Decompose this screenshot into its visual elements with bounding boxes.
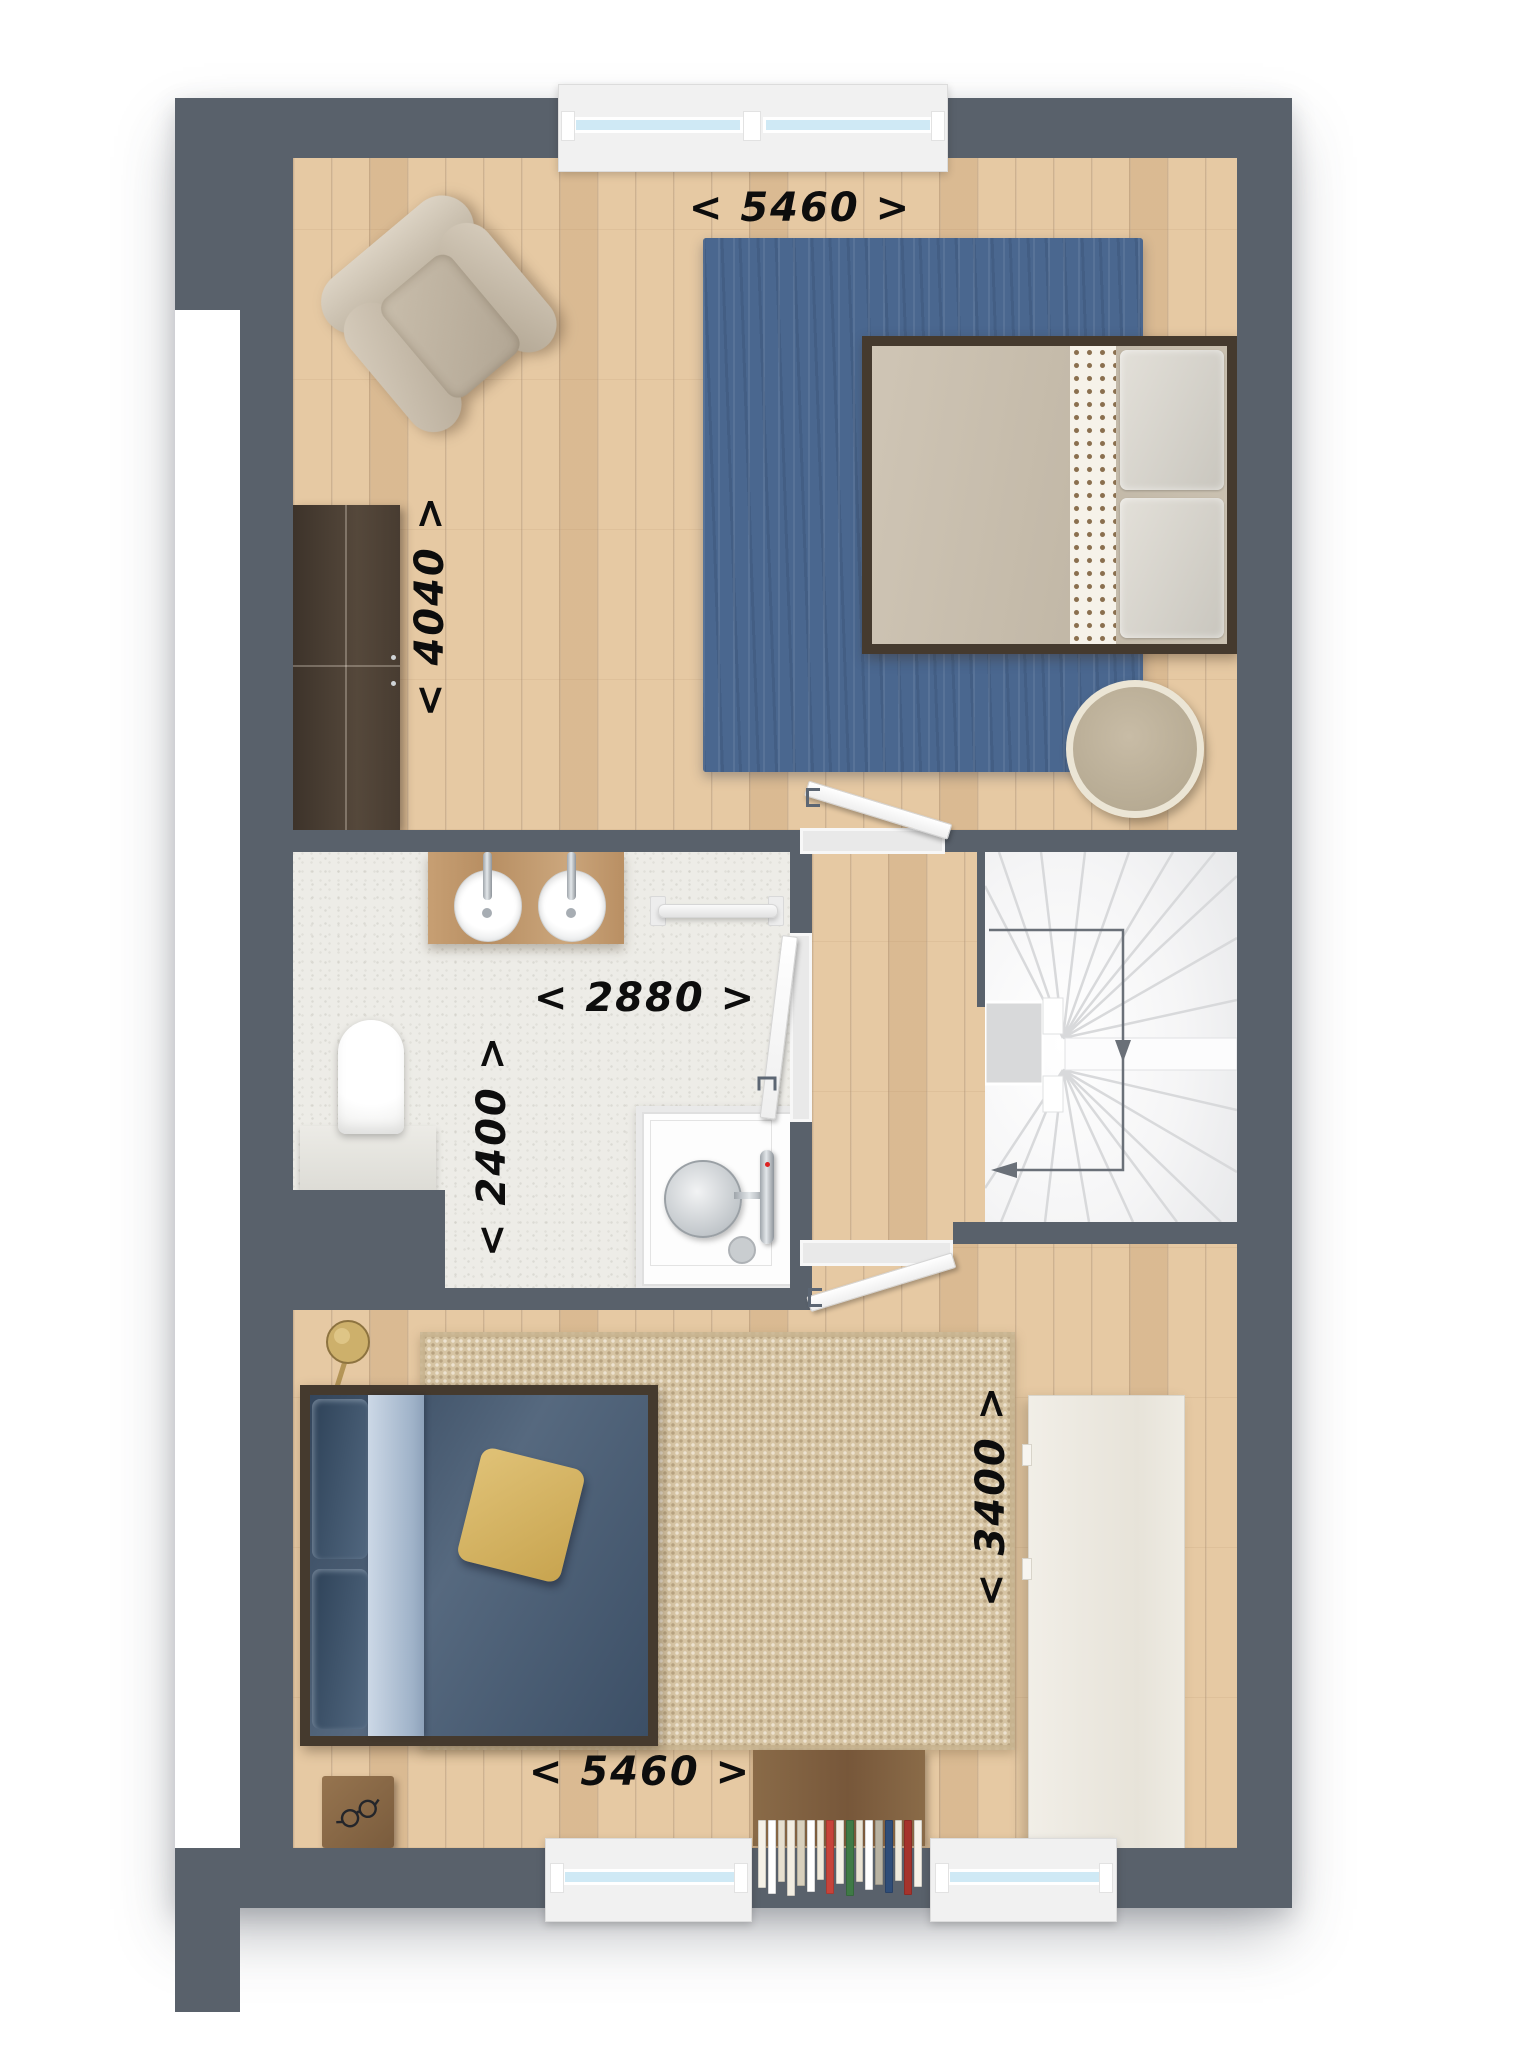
book-spine [875, 1820, 883, 1885]
faucet-right-icon [567, 852, 576, 900]
book-spine [885, 1820, 893, 1893]
window-bottom-right-glass [947, 1869, 1103, 1885]
nightstand [322, 1776, 394, 1848]
faucet-left-icon [483, 852, 492, 900]
wall-bedroom-top-divider-left [293, 830, 800, 852]
wardrobe-handle [391, 655, 396, 660]
book-spine [797, 1820, 805, 1886]
wardrobe-handle-2 [391, 681, 396, 686]
book-spine [856, 1820, 864, 1882]
wall-hall-stairs [977, 852, 985, 1007]
dim-bedroom-bottom-depth: < 3400 > [969, 1397, 1013, 1607]
bookcase-books [758, 1820, 922, 1900]
window-bottom-left [545, 1838, 752, 1922]
wall-bedroom-top-divider-right [945, 830, 1237, 852]
book-spine [817, 1820, 825, 1880]
dim-bedroom-bottom-width: < 5460 > [465, 1750, 815, 1794]
window-top-glass-right [763, 117, 933, 133]
staircase [985, 852, 1237, 1222]
wall-left [240, 98, 293, 1908]
bed2-pillow-top [312, 1399, 368, 1559]
window-bottom-right-cap-a [935, 1863, 949, 1893]
book-spine [778, 1820, 786, 1882]
wardrobe [293, 505, 400, 830]
dresser-handle-top [1022, 1444, 1032, 1466]
bed-top-bedroom [862, 336, 1237, 654]
round-pouf [1066, 680, 1204, 818]
window-bottom-right [930, 1838, 1117, 1922]
glasses-icon [322, 1776, 394, 1848]
dim-bathroom-width: < 2880 > [500, 976, 790, 1020]
book-spine [826, 1820, 834, 1894]
book-spine [904, 1820, 912, 1895]
bed-pillow-bottom [1120, 498, 1224, 638]
book-spine [768, 1820, 776, 1894]
book-spine [758, 1820, 766, 1888]
dresser-handle-bottom [1022, 1558, 1032, 1580]
window-top-cap-right [931, 111, 945, 141]
book-spine [836, 1820, 844, 1884]
bed2-folded-sheet [368, 1395, 424, 1736]
door-bathroom-handle-icon [758, 1077, 777, 1091]
book-spine [846, 1820, 854, 1896]
window-top-glass-left [573, 117, 743, 133]
bed2-pillow-bottom [312, 1569, 368, 1729]
window-bottom-left-glass [562, 1869, 738, 1885]
window-top-cap-left [561, 111, 575, 141]
bed-bottom-bedroom [300, 1385, 658, 1746]
window-bottom-left-cap-b [734, 1863, 748, 1893]
bed-pillow-top [1120, 350, 1224, 490]
pier-bottom-left [175, 1848, 240, 2012]
sink-right-drain [566, 908, 576, 918]
pier-top-left [175, 98, 240, 310]
window-top-mullion [743, 111, 761, 141]
window-bottom-right-cap-b [1099, 1863, 1113, 1893]
shower-head-icon [664, 1160, 742, 1238]
hallway-floor [812, 852, 985, 1242]
dim-bedroom-top-depth: < 4040 > [408, 507, 452, 717]
accent-pillow [456, 1446, 587, 1584]
shower-drain [728, 1236, 756, 1264]
stairs-newel-bottom [1043, 1076, 1063, 1112]
window-bottom-left-cap-a [550, 1863, 564, 1893]
door-top-bedroom-handle-icon [806, 788, 820, 807]
floor-plan-canvas: < 5460 > < 4040 > < 2880 > < 2400 > < 54… [0, 0, 1536, 2048]
book-spine [807, 1820, 815, 1892]
book-spine [787, 1820, 795, 1896]
window-top [558, 84, 948, 172]
book-spine [865, 1820, 873, 1890]
towel-rail-bar [658, 904, 778, 918]
dresser [1028, 1395, 1185, 1849]
towel-rail [650, 896, 784, 926]
wardrobe-seam-2 [345, 505, 347, 830]
dim-bathroom-depth: < 2400 > [470, 1047, 514, 1257]
wall-bathroom-notch [293, 1190, 445, 1310]
toilet-bowl [338, 1020, 404, 1134]
toilet-cistern [300, 1126, 436, 1190]
book-spine [895, 1820, 903, 1881]
wall-right [1237, 98, 1292, 1908]
shower-mixer-indicator [765, 1162, 770, 1167]
sink-left-drain [482, 908, 492, 918]
dim-bedroom-top-width: < 5460 > [640, 186, 960, 230]
wall-stairs-bottom [953, 1222, 1237, 1244]
stairs-newel-top [1043, 998, 1063, 1034]
door-bottom-bedroom-handle-icon [808, 1288, 822, 1307]
book-spine [914, 1820, 922, 1887]
bed-sheet-fold-dotted [1070, 346, 1116, 644]
stairs-mid-tread [1065, 1038, 1237, 1070]
stairs-landing [985, 1002, 1043, 1084]
